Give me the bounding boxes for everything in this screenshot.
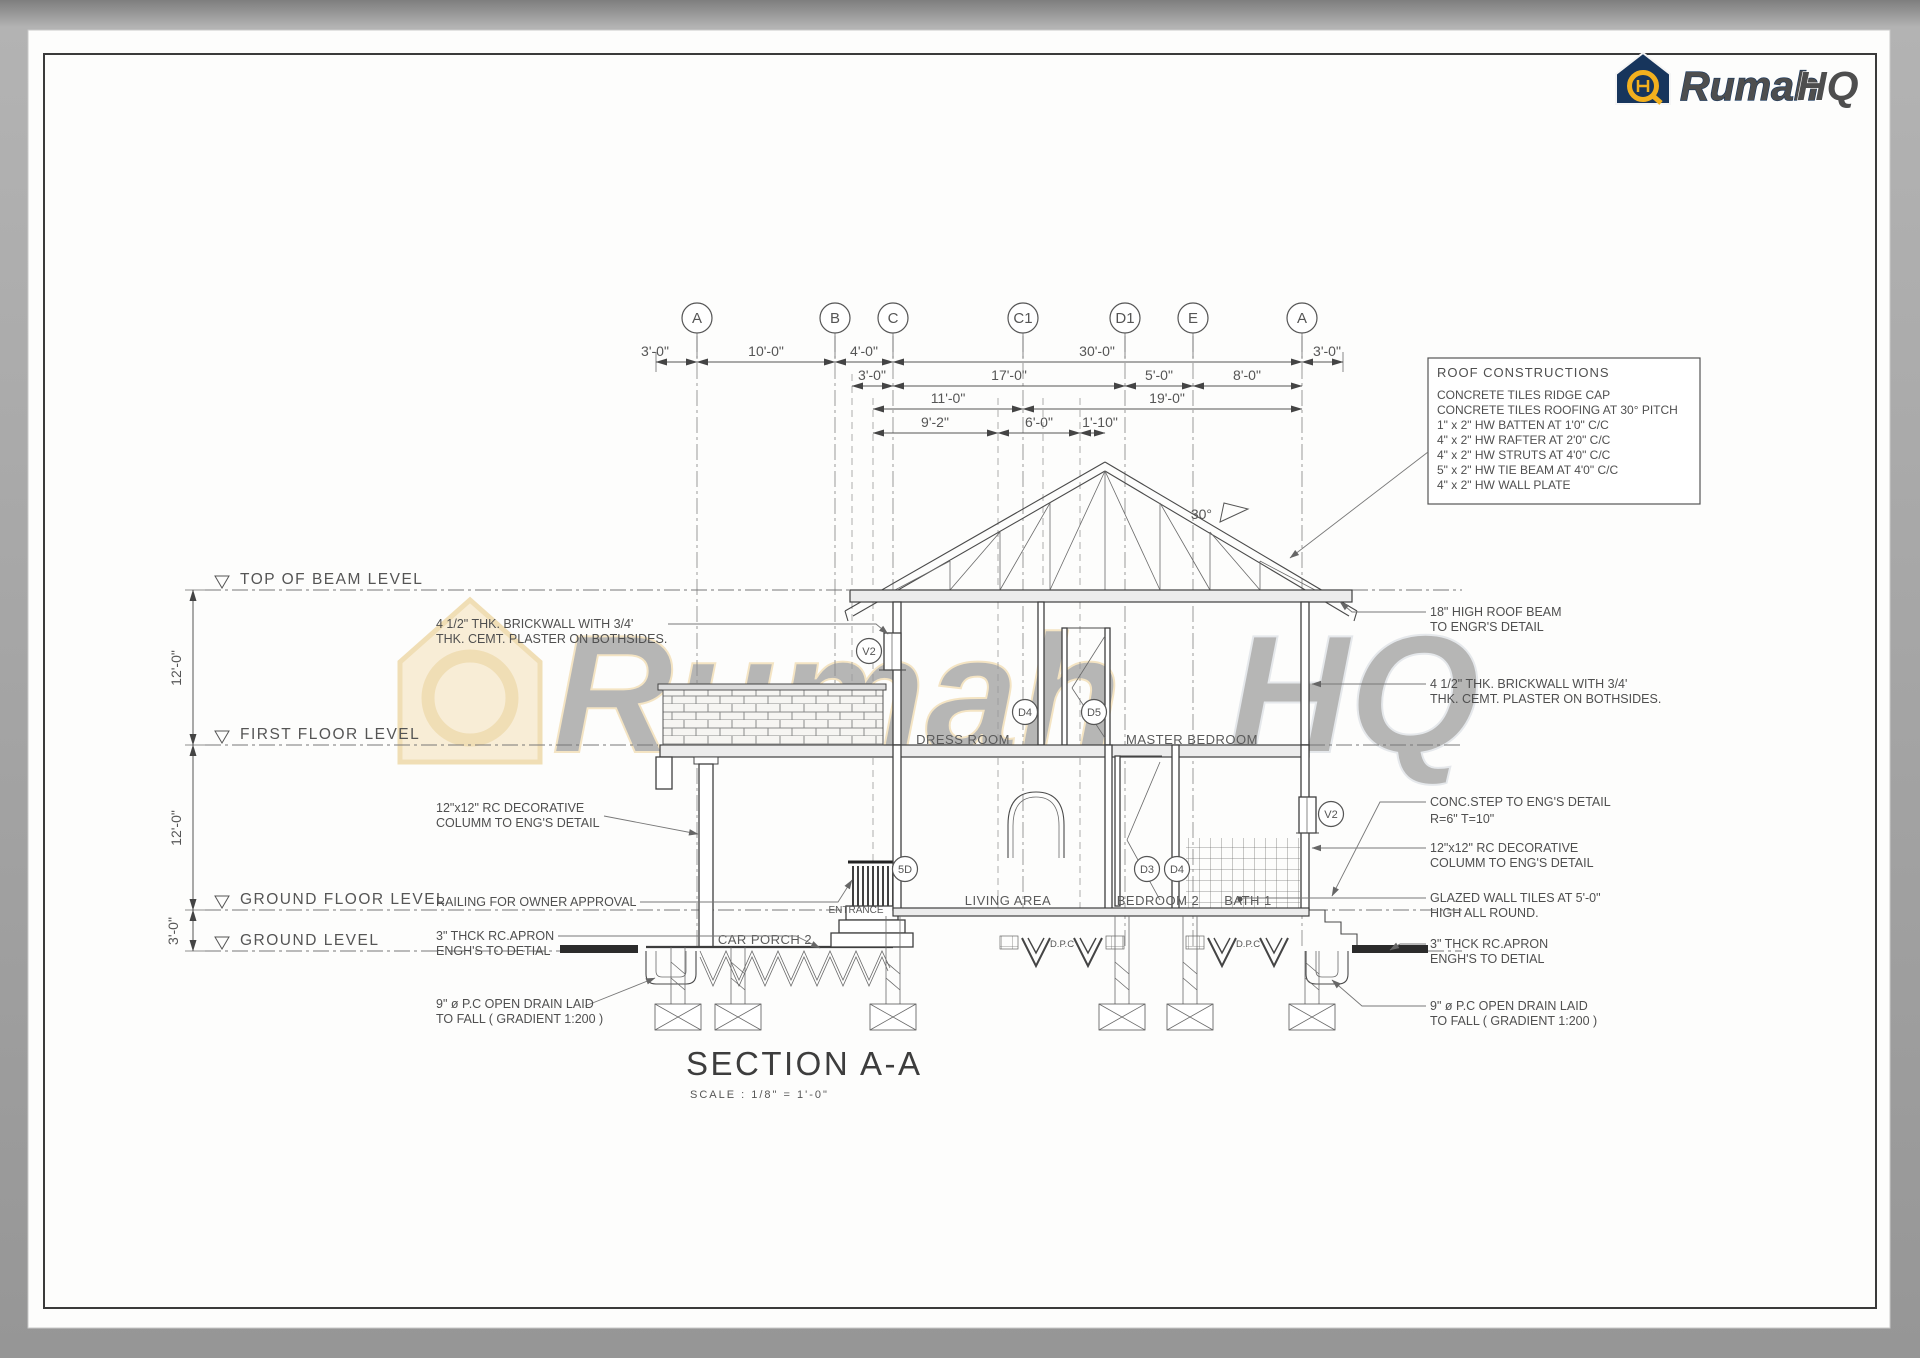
tag-label: 5D — [898, 864, 912, 876]
window-v2-ground — [1299, 797, 1316, 833]
dim-label: 12'-0" — [168, 650, 184, 686]
dim-label: 8'-0" — [1233, 367, 1261, 383]
architectural-section-drawing: Rumah HQ A B C C1 D1 E A — [0, 0, 1920, 1358]
annotation-line: GLAZED WALL TILES AT 5'-0" — [1430, 891, 1601, 905]
screenshot-stage: Rumah HQ A B C C1 D1 E A — [0, 0, 1920, 1358]
roof-box-title: ROOF CONSTRUCTIONS — [1437, 365, 1610, 380]
dim-label: 11'-0" — [931, 390, 966, 406]
tag-label: V2 — [862, 646, 875, 658]
annotation-line: RAILING FOR OWNER APPROVAL — [436, 895, 637, 909]
roof-box-item: 1" x 2" HW BATTEN AT 1'0" C/C — [1437, 418, 1609, 432]
tag-label: D4 — [1018, 707, 1032, 719]
annotation-line: 9" ø P.C OPEN DRAIN LAID — [1430, 999, 1588, 1013]
roof-pitch-label: 30° — [1191, 506, 1212, 522]
annotation-line: COLUMM TO ENG'S DETAIL — [1430, 856, 1594, 870]
dim-label: 5'-0" — [1145, 367, 1173, 383]
annotation-line: 3" THCK RC.APRON — [1430, 937, 1548, 951]
room-label: CAR PORCH 2 — [718, 932, 812, 947]
dim-label: 4'-0" — [850, 343, 878, 359]
annotation-line: THK. CEMT. PLASTER ON BOTHSIDES. — [436, 632, 667, 646]
entrance-step — [831, 933, 913, 947]
room-label: DRESS ROOM — [916, 732, 1010, 747]
annotation-line: COLUMM TO ENG'S DETAIL — [436, 816, 600, 830]
roof-box-item: 4" x 2" HW RAFTER AT 2'0" C/C — [1437, 433, 1611, 447]
room-label: MASTER BEDROOM — [1126, 732, 1258, 747]
dim-label: 3'-0" — [165, 917, 181, 945]
annotation-line: CONC.STEP TO ENG'S DETAIL — [1430, 795, 1611, 809]
grid-bubble-label: D1 — [1115, 310, 1134, 327]
annotation-line: ENGH'S TO DETIAL — [436, 944, 551, 958]
annotation-line: R=6" T=10" — [1430, 812, 1494, 826]
roof-box-item: CONCRETE TILES RIDGE CAP — [1437, 388, 1610, 402]
dim-label: 30'-0" — [1079, 343, 1115, 359]
dim-label: 6'-0" — [1025, 414, 1053, 430]
level-label: GROUND FLOOR LEVEL — [240, 891, 446, 908]
entrance-step — [839, 920, 905, 933]
logo-brand-suffix: HQ — [1797, 63, 1859, 109]
annotation-line: 3" THCK RC.APRON — [436, 929, 554, 943]
dim-label: 3'-0" — [641, 343, 669, 359]
grid-bubble-label: B — [830, 310, 840, 327]
roof-box-item: CONCRETE TILES ROOFING AT 30° PITCH — [1437, 403, 1678, 417]
room-label: ENTRANCE — [828, 905, 883, 916]
dim-label: 12'-0" — [168, 810, 184, 846]
room-label: LIVING AREA — [965, 893, 1051, 908]
section-scale: SCALE : 1/8" = 1'-0" — [690, 1089, 829, 1101]
dpc-label: D.P.C — [1050, 939, 1074, 950]
roof-box-item: 4" x 2" HW STRUTS AT 4'0" C/C — [1437, 448, 1611, 462]
annotation-line: 9" ø P.C OPEN DRAIN LAID — [436, 997, 594, 1011]
balcony-brick-parapet — [663, 690, 883, 745]
roof-box-item: 5" x 2" HW TIE BEAM AT 4'0" C/C — [1437, 463, 1618, 477]
dim-label: 3'-0" — [858, 367, 886, 383]
tag-label: D5 — [1087, 707, 1101, 719]
annotation-line: ENGH'S TO DETIAL — [1430, 952, 1545, 966]
room-label: BATH 1 — [1224, 893, 1272, 908]
dim-label: 9'-2" — [921, 414, 949, 430]
annotation-line: 12"x12" RC DECORATIVE — [1430, 841, 1578, 855]
roof-box-item: 4" x 2" HW WALL PLATE — [1437, 478, 1570, 492]
window-v2-upper — [884, 633, 901, 670]
annotation-line: HIGH ALL ROUND. — [1430, 906, 1539, 920]
grid-bubble-label: E — [1188, 310, 1198, 327]
section-title: SECTION A-A — [686, 1045, 923, 1082]
tag-label: D3 — [1140, 864, 1154, 876]
dim-label: 17'-0" — [991, 367, 1027, 383]
annotation-line: THK. CEMT. PLASTER ON BOTHSIDES. — [1430, 692, 1661, 706]
grid-bubble-label: C — [888, 310, 899, 327]
tag-label: V2 — [1324, 809, 1337, 821]
dpc-label: D.P.C — [1236, 939, 1260, 950]
level-label: GROUND LEVEL — [240, 932, 379, 949]
grid-bubble-label: A — [1297, 310, 1307, 327]
dim-label: 19'-0" — [1149, 390, 1185, 406]
level-label: TOP OF BEAM LEVEL — [240, 571, 423, 588]
apron-left — [560, 945, 638, 953]
dim-label: 3'-0" — [1313, 343, 1341, 359]
grid-bubble-label: C1 — [1013, 310, 1032, 327]
annotation-line: 4 1/2" THK. BRICKWALL WITH 3/4' — [1430, 677, 1627, 691]
annotation-line: TO FALL ( GRADIENT 1:200 ) — [436, 1012, 603, 1026]
room-label: BEDROOM 2 — [1117, 893, 1200, 908]
dim-label: 1'-10" — [1082, 414, 1118, 430]
annotation-line: TO ENGR'S DETAIL — [1430, 620, 1544, 634]
annotation-line: TO FALL ( GRADIENT 1:200 ) — [1430, 1014, 1597, 1028]
level-label: FIRST FLOOR LEVEL — [240, 726, 420, 743]
grid-bubble-label: A — [692, 310, 702, 327]
annotation-line: 18" HIGH ROOF BEAM — [1430, 605, 1562, 619]
apron-right — [1352, 945, 1428, 953]
annotation-line: 12"x12" RC DECORATIVE — [436, 801, 584, 815]
annotation-line: 4 1/2" THK. BRICKWALL WITH 3/4' — [436, 617, 633, 631]
tag-label: D4 — [1170, 864, 1184, 876]
porch-column — [699, 764, 713, 947]
roof-beam — [850, 590, 1352, 602]
dim-label: 10'-0" — [748, 343, 784, 359]
